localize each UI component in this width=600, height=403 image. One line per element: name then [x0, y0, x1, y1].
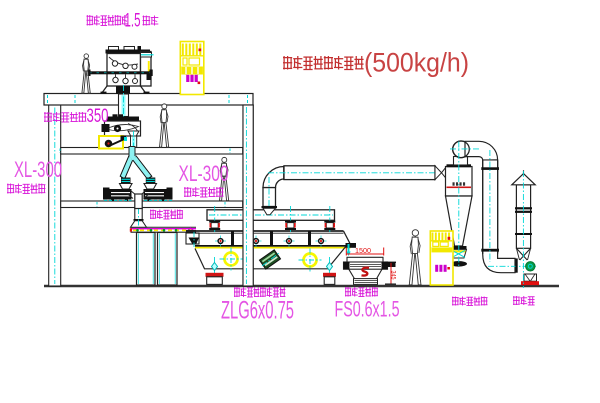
svg-text:(500kg/h): (500kg/h) — [364, 48, 469, 78]
svg-text:XL-300: XL-300 — [14, 157, 62, 182]
svg-text:1.5: 1.5 — [125, 11, 141, 32]
svg-text:1500: 1500 — [355, 248, 371, 255]
svg-text:FS0.6x1.5: FS0.6x1.5 — [335, 297, 400, 322]
svg-text:XL-300: XL-300 — [179, 161, 229, 186]
svg-text:ZLG6x0.75: ZLG6x0.75 — [221, 297, 294, 325]
svg-text:345: 345 — [390, 271, 396, 281]
svg-text:350: 350 — [87, 106, 109, 127]
